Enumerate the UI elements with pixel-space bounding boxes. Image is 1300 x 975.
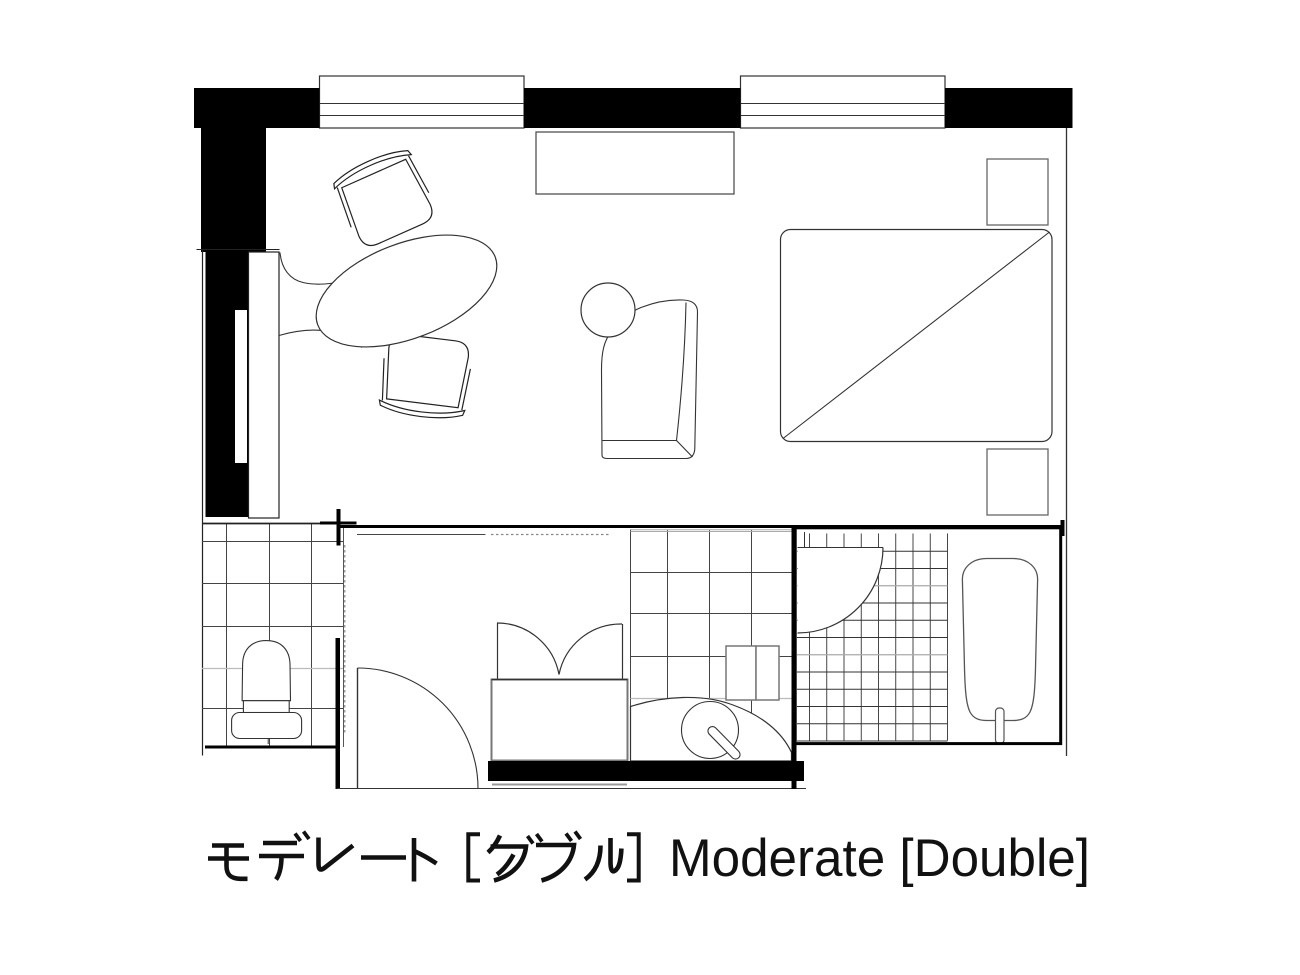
svg-text:Moderate [Double]: Moderate [Double] (669, 829, 1090, 888)
